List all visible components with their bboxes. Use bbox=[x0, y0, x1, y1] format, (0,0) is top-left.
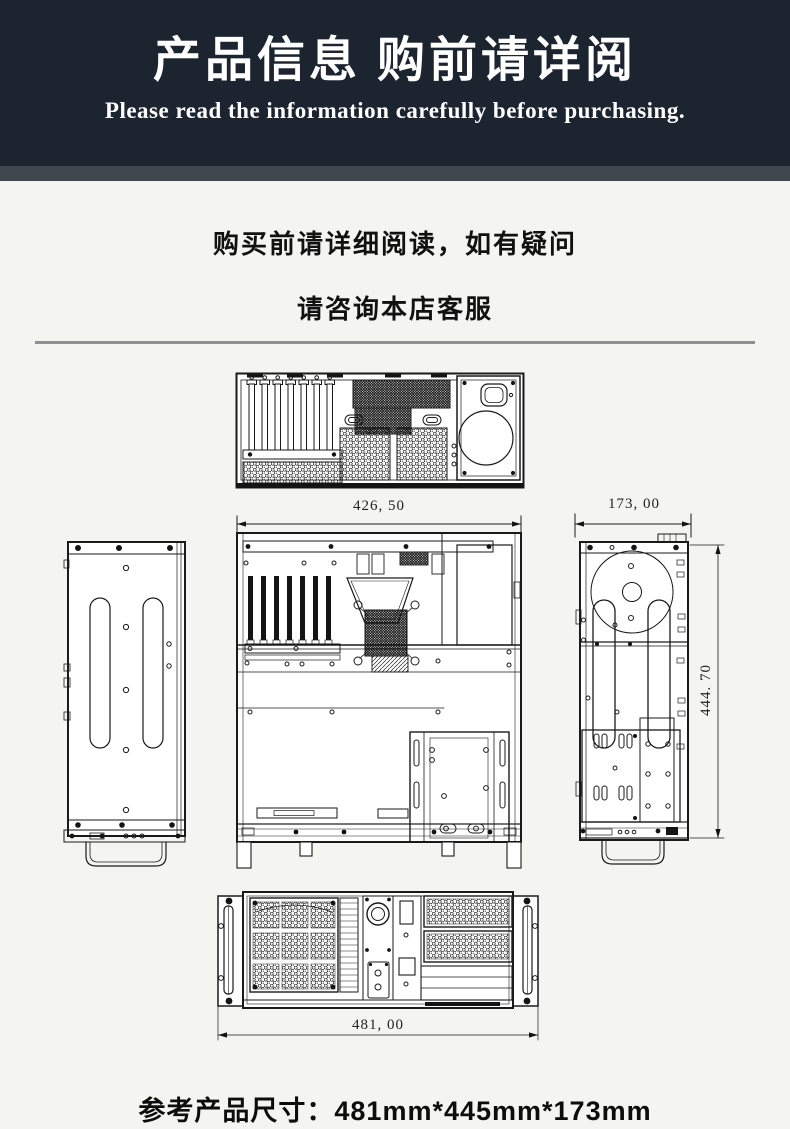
rack-ear-left bbox=[218, 896, 243, 1006]
io-shield-area bbox=[353, 380, 450, 408]
product-info-page: 产品信息 购前请详阅 Please read the information c… bbox=[0, 0, 790, 1129]
case-handle bbox=[86, 842, 166, 866]
notice-line-2: 请咨询本店客服 bbox=[0, 289, 790, 326]
notice-line-1: 购买前请详细阅读，如有疑问 bbox=[0, 224, 790, 261]
rack-ear-right bbox=[513, 896, 538, 1006]
banner-title: 产品信息 购前请详阅 bbox=[0, 0, 790, 88]
banner-bottom-strip bbox=[0, 166, 790, 181]
case-handle bbox=[602, 840, 664, 864]
rear-vent-mesh-left bbox=[340, 428, 390, 480]
top-rear-connector bbox=[658, 534, 686, 542]
reference-dimensions-note: 参考产品尺寸：481mm*445mm*173mm bbox=[0, 1089, 790, 1128]
section-divider bbox=[35, 341, 755, 344]
rear-vent-mesh-right bbox=[397, 428, 447, 480]
front-mesh-door bbox=[250, 898, 338, 992]
dimension-label-side-width: 173, 00 bbox=[573, 495, 695, 513]
dimension-label-top-width: 426, 50 bbox=[236, 497, 522, 515]
rear-bottom-vent-mesh bbox=[243, 462, 342, 483]
case-feet bbox=[237, 842, 521, 868]
banner: 产品信息 购前请详阅 Please read the information c… bbox=[0, 0, 790, 166]
psu-area bbox=[457, 376, 520, 480]
dimension-label-front-width: 481, 00 bbox=[216, 1016, 540, 1034]
banner-subtitle: Please read the information carefully be… bbox=[0, 98, 790, 124]
rear-panel-drawing bbox=[235, 372, 525, 491]
purchase-notice: 购买前请详细阅读，如有疑问 请咨询本店客服 bbox=[0, 224, 790, 326]
top-internal-drawing bbox=[234, 528, 524, 876]
dimension-label-side-height: 444. 70 bbox=[697, 650, 715, 730]
left-side-drawing bbox=[62, 538, 190, 876]
